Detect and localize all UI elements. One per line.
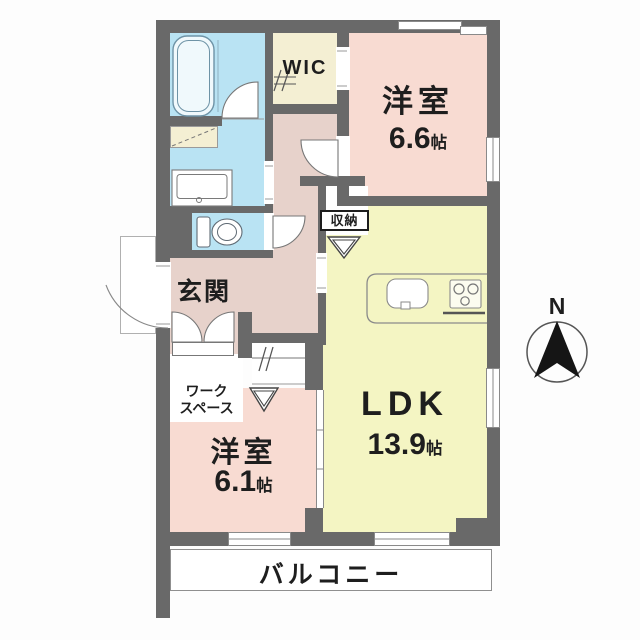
bedroom-sub-size-unit: 帖 (256, 477, 273, 495)
window-bedroom-main (486, 137, 500, 182)
entrance-porch (120, 236, 156, 334)
wall-bath-divider (170, 116, 222, 126)
entrance-label: 玄関 (160, 272, 248, 308)
window-bedroom-sub-balcony (228, 532, 291, 546)
wall-closet-top (238, 333, 313, 343)
workspace-label-line2: スペース (170, 400, 243, 417)
compass-rose-icon (527, 321, 587, 382)
wall-bedroom-main-bottom (337, 196, 487, 206)
bedroom-sub-size: 6.1帖 (170, 465, 317, 499)
wic-door (336, 47, 350, 90)
window-ldk-right (486, 368, 500, 428)
floor-plan: 収納 (0, 0, 640, 640)
bedroom-main-name: 洋室 (349, 76, 487, 121)
bedroom-main-size-unit: 帖 (431, 134, 448, 152)
bedroom-sub-size-number: 6.1 (214, 465, 256, 498)
ldk-name: LDK (323, 385, 487, 424)
wall-wic-bottom (265, 104, 337, 114)
ldk-size-number: 13.9 (368, 428, 426, 461)
ldk-area-upper (368, 206, 487, 235)
washroom-door (264, 161, 274, 204)
wall-entrance-top (170, 250, 273, 258)
shoe-cabinet (172, 342, 234, 356)
bedroom-main-size: 6.6帖 (349, 122, 487, 156)
workspace-label-line1: ワーク (170, 383, 243, 400)
hall-nook-area (318, 114, 337, 176)
ldk-door (316, 253, 327, 293)
hall-closet-interior (252, 343, 305, 385)
toilet-area (192, 213, 265, 250)
wall-bottom (170, 532, 500, 546)
window-top-1 (398, 21, 462, 30)
bedroom-main-door-opening (336, 136, 350, 176)
wall-corner-pillar (456, 518, 500, 546)
window-ldk-balcony (374, 532, 450, 546)
laundry-space (170, 126, 218, 148)
bathroom-area (170, 33, 265, 118)
balcony-label: バルコニー (170, 555, 492, 591)
wall-right (487, 20, 500, 546)
compass-north-label: N (542, 293, 572, 320)
wall-washroom-toilet (170, 206, 265, 213)
wall-hall-nook-bottom (300, 176, 365, 186)
storage-label-box: 収納 (320, 210, 369, 231)
toilet-door-opening (264, 213, 274, 250)
wall-bedroom-ldk-bottom (305, 508, 323, 532)
window-top-2 (460, 26, 487, 35)
ldk-size-unit: 帖 (426, 440, 443, 458)
storage-label: 収納 (330, 213, 358, 228)
wic-label: WIC (273, 57, 337, 80)
workspace-label: ワーク スペース (170, 383, 243, 417)
bedroom-main-size-number: 6.6 (389, 122, 431, 155)
wall-toilet-left (170, 213, 192, 250)
ldk-area (323, 235, 487, 532)
ldk-size: 13.9帖 (323, 428, 487, 462)
